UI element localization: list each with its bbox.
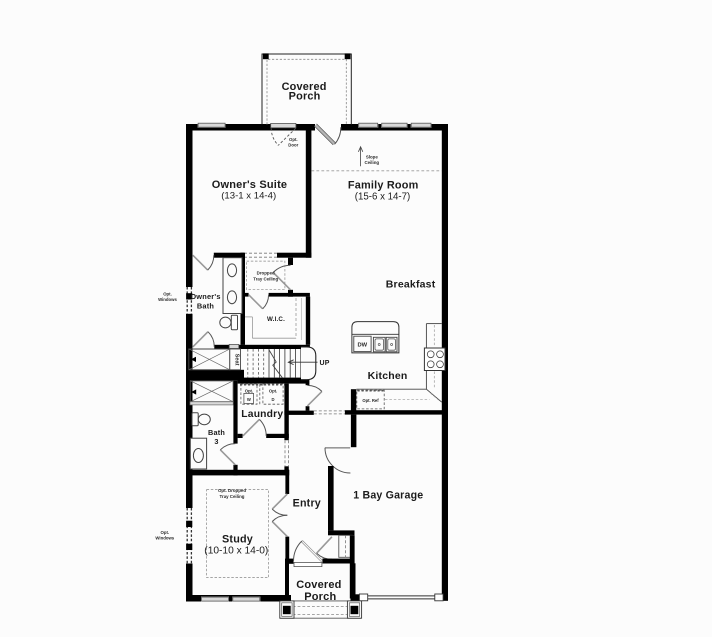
svg-text:Family Room: Family Room [348, 179, 419, 191]
svg-text:Windows: Windows [155, 536, 174, 541]
svg-text:Door: Door [288, 143, 298, 148]
svg-text:Opt.: Opt. [289, 137, 298, 142]
svg-text:1 Bay Garage: 1 Bay Garage [353, 489, 423, 501]
svg-text:Covered: Covered [296, 579, 341, 591]
svg-text:Dropped: Dropped [257, 270, 275, 275]
svg-text:Entry: Entry [293, 497, 321, 509]
svg-text:Opt.: Opt. [269, 388, 277, 393]
svg-text:W: W [247, 397, 251, 402]
svg-text:D: D [271, 397, 274, 402]
svg-text:Laundry: Laundry [241, 409, 283, 420]
svg-text:DW: DW [357, 343, 367, 349]
svg-text:(10-10 x 14-0): (10-10 x 14-0) [204, 546, 268, 557]
svg-text:Tray Ceiling: Tray Ceiling [220, 494, 245, 499]
svg-text:3: 3 [214, 437, 218, 446]
svg-text:W.I.C.: W.I.C. [267, 316, 285, 323]
svg-text:Tray Ceiling: Tray Ceiling [253, 276, 278, 281]
svg-text:Kitchen: Kitchen [368, 370, 408, 382]
svg-text:Slope: Slope [366, 155, 379, 160]
svg-text:Opt.: Opt. [161, 530, 170, 535]
svg-text:Opt.: Opt. [163, 291, 172, 296]
svg-text:Porch: Porch [289, 91, 321, 103]
svg-text:Breakfast: Breakfast [386, 278, 436, 290]
svg-text:Opt. Ref: Opt. Ref [362, 398, 379, 403]
svg-text:Opt.: Opt. [245, 388, 253, 393]
svg-text:Owner's: Owner's [190, 292, 220, 301]
svg-text:(13-1 x 14-4): (13-1 x 14-4) [221, 191, 276, 202]
svg-text:Bath: Bath [197, 301, 215, 310]
svg-text:Owner's Suite: Owner's Suite [212, 179, 288, 191]
svg-text:Study: Study [222, 534, 253, 546]
svg-text:Seat: Seat [234, 354, 240, 366]
svg-text:(15-6 x 14-7): (15-6 x 14-7) [355, 192, 410, 203]
svg-text:Opt. Dropped: Opt. Dropped [218, 488, 246, 493]
svg-text:Ceiling: Ceiling [364, 160, 379, 165]
svg-text:UP: UP [319, 360, 329, 367]
svg-text:Windows: Windows [158, 297, 177, 302]
svg-text:Porch: Porch [304, 591, 336, 603]
